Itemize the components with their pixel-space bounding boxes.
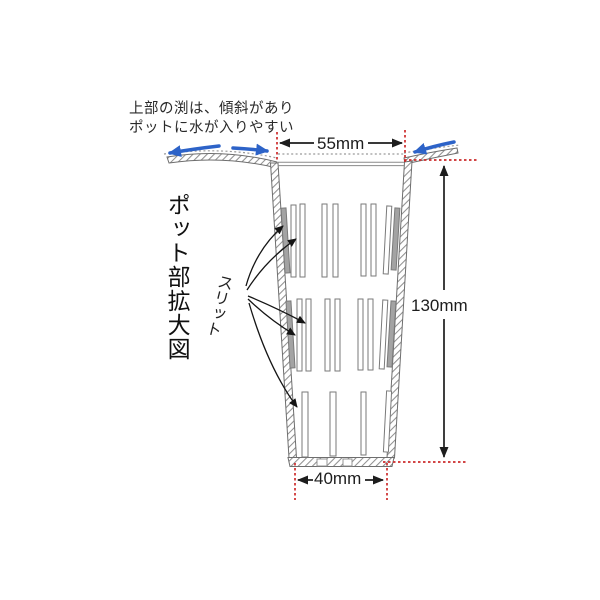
pot-enlarged-diagram: 上部の渕は、傾斜があり ポットに水が入りやすい ポット部拡大図 スリット 55m… (0, 0, 600, 600)
slit (333, 204, 338, 277)
slit (383, 206, 392, 274)
slit-arrow (248, 296, 305, 323)
slit (371, 204, 376, 276)
dimension-label-bottom-width: 40mm (314, 469, 361, 489)
drain-notch (343, 459, 352, 466)
top-edge-note-line2: ポットに水が入りやすい (129, 119, 294, 138)
dimension-label-height: 130mm (411, 296, 468, 316)
pot-diagram-drawing (0, 0, 600, 600)
water-arrow-right (233, 148, 267, 151)
dimension-label-top-width: 55mm (317, 134, 364, 154)
slit (358, 299, 363, 370)
slit (306, 299, 311, 371)
slit (330, 392, 336, 456)
drain-notch (317, 459, 327, 466)
pot-bottom (288, 458, 394, 467)
slit (335, 299, 340, 371)
slit (297, 299, 302, 371)
slit (361, 204, 366, 276)
water-arrow-left (170, 146, 219, 153)
top-edge-note-line1: 上部の渕は、傾斜があり (129, 100, 294, 119)
slit (325, 299, 330, 371)
pot-left-rim-flange (167, 153, 277, 168)
top-edge-note: 上部の渕は、傾斜があり ポットに水が入りやすい (129, 100, 294, 138)
slits (281, 204, 400, 457)
slit (302, 392, 308, 457)
diagram-title-vertical: ポット部拡大図 (165, 193, 189, 361)
slit (300, 204, 305, 277)
slit (322, 204, 327, 277)
slit (379, 300, 388, 369)
slit (368, 299, 373, 370)
slit (361, 392, 366, 455)
